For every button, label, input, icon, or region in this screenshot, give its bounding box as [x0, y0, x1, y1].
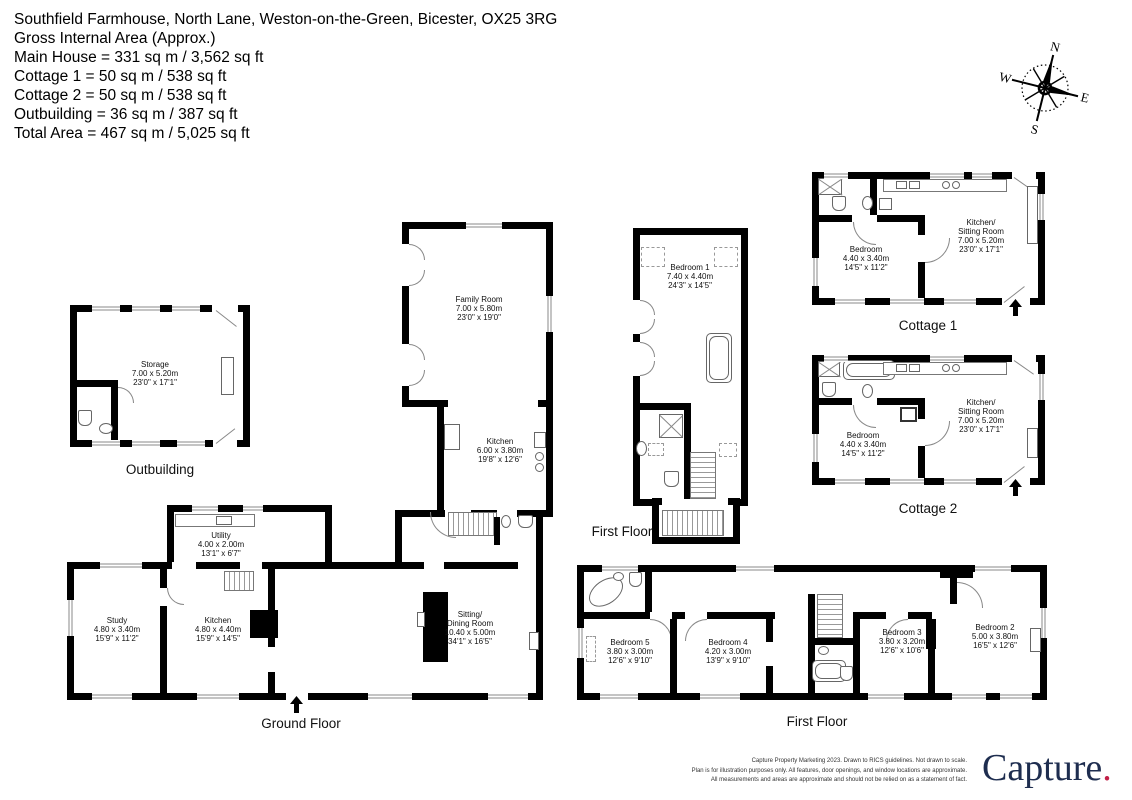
disclaimer-line-3: All measurements and areas are approxima… — [600, 776, 967, 786]
room-opening — [172, 562, 196, 569]
room-name: Storage — [132, 360, 178, 369]
storage-unit — [1030, 628, 1041, 652]
window — [824, 355, 848, 362]
room-dims-metric: 5.00 x 3.80m — [972, 632, 1018, 641]
room-name: Kitchen/ — [958, 218, 1004, 227]
wall — [77, 380, 111, 387]
bathtub-icon — [706, 333, 732, 383]
window — [835, 478, 865, 485]
disclaimer-line-2: Plan is for illustration purposes only. … — [600, 767, 967, 777]
window — [952, 693, 986, 700]
room-dims-metric: 4.20 x 3.00m — [705, 647, 751, 656]
window — [197, 693, 239, 700]
room-dims-imperial: 24'3" x 14'5" — [667, 281, 713, 290]
window — [602, 565, 638, 572]
storage-unit — [1027, 428, 1038, 458]
room-name: Kitchen/ — [958, 398, 1004, 407]
room-label-c2-kitchen: Kitchen/ Sitting Room 7.00 x 5.20m 23'0"… — [958, 398, 1004, 434]
door-opening — [633, 342, 640, 376]
toilet-icon — [629, 572, 642, 587]
stove-icon — [900, 407, 917, 422]
disclaimer: Capture Property Marketing 2023. Drawn t… — [600, 757, 967, 786]
staircase — [224, 571, 254, 591]
fireplace — [417, 612, 425, 627]
room-dims-imperial: 14'5" x 11'2" — [840, 449, 886, 458]
toilet-icon — [664, 471, 679, 487]
wall — [815, 638, 853, 645]
wall — [926, 619, 936, 649]
radiator — [529, 632, 539, 650]
entrance-arrow-icon — [289, 696, 304, 718]
sink-icon — [501, 515, 511, 528]
room-name: Kitchen — [477, 437, 523, 446]
area-cottage-1: Cottage 1 = 50 sq m / 538 sq ft — [14, 67, 557, 86]
section-label-first-floor-wing: First Floor — [787, 714, 848, 729]
window — [488, 693, 528, 700]
section-label-cottage1: Cottage 1 — [899, 318, 958, 333]
room-label-utility: Utility 4.00 x 2.00m 13'1" x 6'7" — [198, 531, 244, 558]
room-dims-imperial: 15'9" x 11'2" — [94, 634, 140, 643]
room-dims-imperial: 13'1" x 6'7" — [198, 549, 244, 558]
sink-icon — [636, 441, 647, 456]
room-dims-metric: 7.00 x 5.20m — [132, 369, 178, 378]
window — [944, 478, 976, 485]
room-name-2: Dining Room — [445, 619, 496, 628]
window — [243, 505, 263, 512]
room-label-c1-kitchen: Kitchen/ Sitting Room 7.00 x 5.20m 23'0"… — [958, 218, 1004, 254]
staircase — [662, 510, 724, 536]
room-name-2: Sitting Room — [958, 227, 1004, 236]
room-opening — [518, 562, 536, 569]
door-opening — [402, 344, 409, 386]
disclaimer-line-1: Capture Property Marketing 2023. Drawn t… — [600, 757, 967, 767]
room-label-c1-bedroom: Bedroom 4.40 x 3.40m 14'5" x 11'2" — [843, 245, 889, 272]
room-name: Utility — [198, 531, 244, 540]
sink-icon — [818, 646, 829, 655]
wall — [918, 262, 925, 298]
room-name: Bedroom 5 — [607, 638, 653, 647]
oven-icon — [534, 432, 546, 448]
window — [812, 434, 819, 462]
room-dims-metric: 10.40 x 5.00m — [445, 628, 496, 637]
room-label-family-room: Family Room 7.00 x 5.80m 23'0" x 19'0" — [455, 295, 502, 322]
capture-logo-dot: . — [1102, 747, 1112, 789]
room-dims-imperial: 13'9" x 9'10" — [705, 656, 751, 665]
room-name: Kitchen — [195, 616, 241, 625]
wall — [918, 446, 925, 478]
room-dims-imperial: 23'0" x 19'0" — [455, 313, 502, 322]
room-label-kitchen-gf: Kitchen 4.80 x 4.40m 15'9" x 14'5" — [195, 616, 241, 643]
window — [890, 478, 924, 485]
hob-icon — [942, 364, 950, 372]
gross-internal-area-label: Gross Internal Area (Approx.) — [14, 29, 557, 48]
window — [172, 305, 200, 312]
room-dims-metric: 7.00 x 5.20m — [958, 416, 1004, 425]
window — [546, 296, 553, 332]
compass-east-label: E — [1079, 89, 1090, 105]
wall — [672, 612, 685, 619]
wall — [670, 619, 677, 693]
room-dims-metric: 4.40 x 3.40m — [843, 254, 889, 263]
room-name: Bedroom 3 — [879, 628, 925, 637]
utility-counter — [175, 514, 255, 527]
window — [1040, 608, 1047, 638]
chimney-breast — [250, 610, 278, 638]
section-label-cottage2: Cottage 2 — [899, 501, 958, 516]
section-label-outbuilding: Outbuilding — [126, 462, 194, 477]
skylight — [586, 636, 596, 662]
room-dims-imperial: 23'0" x 17'1" — [958, 425, 1004, 434]
hob-icon — [942, 181, 950, 189]
hob-icon — [952, 181, 960, 189]
window — [736, 565, 774, 572]
sink-icon — [862, 384, 873, 398]
hob-icon — [535, 463, 544, 472]
window — [132, 440, 160, 447]
room-dims-imperial: 23'0" x 17'1" — [132, 378, 178, 387]
skylight — [641, 247, 665, 267]
storage-unit — [1027, 186, 1038, 244]
window — [890, 298, 924, 305]
window — [466, 222, 502, 229]
window — [92, 305, 120, 312]
skylight — [719, 443, 737, 457]
room-label-storage: Storage 7.00 x 5.20m 23'0" x 17'1" — [132, 360, 178, 387]
window — [368, 693, 412, 700]
window — [67, 600, 74, 636]
window — [975, 565, 1011, 572]
window — [868, 693, 904, 700]
room-dims-imperial: 23'0" x 17'1" — [958, 245, 1004, 254]
room-dims-imperial: 15'9" x 14'5" — [195, 634, 241, 643]
room-dims-metric: 7.00 x 5.20m — [958, 236, 1004, 245]
wall — [640, 403, 684, 410]
compass-north-label: N — [1049, 38, 1062, 55]
room-opening — [662, 498, 728, 507]
wall — [819, 398, 852, 405]
room-label-study: Study 4.80 x 3.40m 15'9" x 11'2" — [94, 616, 140, 643]
skylight — [714, 247, 738, 267]
room-name: Bedroom 2 — [972, 623, 1018, 632]
room-label-sitting-dining: Sitting/ Dining Room 10.40 x 5.00m 34'1"… — [445, 610, 496, 646]
room-dims-imperial: 14'5" x 11'2" — [843, 263, 889, 272]
window — [177, 440, 205, 447]
compass-south-label: S — [1029, 121, 1040, 137]
toilet-icon — [840, 666, 853, 681]
sink-icon — [613, 572, 624, 581]
window — [92, 440, 120, 447]
room-dims-metric: 7.00 x 5.80m — [455, 304, 502, 313]
door-opening — [402, 244, 409, 286]
room-name: Family Room — [455, 295, 502, 304]
staircase — [690, 452, 716, 499]
staircase — [817, 594, 843, 638]
wall — [766, 612, 773, 642]
room-name: Study — [94, 616, 140, 625]
wall — [853, 619, 860, 693]
wall — [908, 612, 932, 619]
compass-west-label: W — [998, 69, 1014, 87]
window — [100, 562, 142, 569]
plan-header: Southfield Farmhouse, North Lane, Weston… — [14, 10, 557, 143]
wall — [877, 398, 925, 405]
area-main-house: Main House = 331 sq m / 3,562 sq ft — [14, 48, 557, 67]
storage-unit — [221, 357, 234, 395]
capture-logo-text: Capture — [982, 747, 1102, 789]
toilet-icon — [78, 410, 92, 426]
room-dims-metric: 4.40 x 3.40m — [840, 440, 886, 449]
wall — [853, 612, 886, 619]
capture-logo: Capture. — [982, 746, 1112, 790]
room-dims-metric: 4.80 x 4.40m — [195, 625, 241, 634]
wall — [819, 215, 852, 222]
window — [600, 693, 638, 700]
room-dims-metric: 4.80 x 3.40m — [94, 625, 140, 634]
wall — [918, 222, 925, 235]
toilet-icon — [518, 515, 533, 528]
window — [92, 693, 132, 700]
area-outbuilding: Outbuilding = 36 sq m / 387 sq ft — [14, 105, 557, 124]
window — [930, 172, 964, 179]
area-total: Total Area = 467 sq m / 5,025 sq ft — [14, 124, 557, 143]
room-label-bedroom1: Bedroom 1 7.40 x 4.40m 24'3" x 14'5" — [667, 263, 713, 290]
window — [835, 298, 865, 305]
skylight — [648, 443, 664, 456]
room-dims-imperial: 12'6" x 9'10" — [607, 656, 653, 665]
kitchen-sink-icon — [896, 181, 907, 189]
compass-rose-icon: N E S W — [993, 34, 1097, 147]
wall — [918, 405, 925, 419]
room-name-2: Sitting Room — [958, 407, 1004, 416]
entrance-arrow-icon — [1008, 479, 1023, 501]
kitchen-sink-unit — [444, 424, 460, 450]
room-dims-metric: 3.80 x 3.20m — [879, 637, 925, 646]
room-dims-metric: 3.80 x 3.00m — [607, 647, 653, 656]
room-label-bedroom5: Bedroom 5 3.80 x 3.00m 12'6" x 9'10" — [607, 638, 653, 665]
room-label-bedroom2: Bedroom 2 5.00 x 3.80m 16'5" x 12'6" — [972, 623, 1018, 650]
room-label-c2-bedroom: Bedroom 4.40 x 3.40m 14'5" x 11'2" — [840, 431, 886, 458]
wall — [268, 672, 275, 693]
toilet-icon — [822, 382, 836, 397]
room-dims-metric: 6.00 x 3.80m — [477, 446, 523, 455]
room-name: Bedroom — [843, 245, 889, 254]
toilet-icon — [832, 196, 846, 211]
hob-icon — [535, 452, 544, 461]
wall — [928, 649, 935, 693]
window — [1000, 693, 1032, 700]
window — [944, 298, 976, 305]
kitchen-sink-icon — [909, 181, 920, 189]
entrance-arrow-icon — [1008, 299, 1023, 321]
section-label-ground-floor: Ground Floor — [261, 716, 341, 731]
room-name: Bedroom 4 — [705, 638, 751, 647]
wall — [877, 215, 925, 222]
sink-icon — [862, 196, 873, 210]
room-name: Sitting/ — [445, 610, 496, 619]
area-cottage-2: Cottage 2 = 50 sq m / 538 sq ft — [14, 86, 557, 105]
appliance-icon — [879, 198, 892, 210]
room-opening — [424, 562, 444, 569]
kitchen-sink-icon — [896, 364, 907, 372]
wall — [494, 517, 500, 545]
room-opening — [448, 400, 538, 407]
door-opening — [633, 300, 640, 334]
window — [972, 172, 992, 179]
room-name: Bedroom — [840, 431, 886, 440]
room-dims-metric: 7.40 x 4.40m — [667, 272, 713, 281]
window — [812, 258, 819, 286]
room-label-bedroom4: Bedroom 4 4.20 x 3.00m 13'9" x 9'10" — [705, 638, 751, 665]
room-name: Bedroom 1 — [667, 263, 713, 272]
room-dims-imperial: 19'8" x 12'6" — [477, 455, 523, 464]
utility-sink-icon — [216, 516, 232, 525]
wall — [160, 606, 167, 693]
window — [1038, 194, 1045, 220]
room-dims-imperial: 16'5" x 12'6" — [972, 641, 1018, 650]
room-dims-metric: 4.00 x 2.00m — [198, 540, 244, 549]
wall — [645, 572, 652, 612]
hob-icon — [952, 364, 960, 372]
kitchen-sink-icon — [909, 364, 920, 372]
window — [930, 355, 964, 362]
window — [577, 628, 584, 658]
property-address: Southfield Farmhouse, North Lane, Weston… — [14, 10, 557, 29]
room-label-kitchen-wing: Kitchen 6.00 x 3.80m 19'8" x 12'6" — [477, 437, 523, 464]
wall — [160, 569, 167, 588]
wall — [707, 612, 775, 619]
room-dims-imperial: 34'1" x 16'5" — [445, 637, 496, 646]
window — [1038, 374, 1045, 400]
sink-icon — [99, 423, 113, 434]
window — [192, 505, 218, 512]
room-dims-imperial: 12'6" x 10'6" — [879, 646, 925, 655]
room-opening — [240, 562, 262, 569]
section-label-first-floor-main: First Floor — [592, 524, 653, 539]
room-label-bedroom3: Bedroom 3 3.80 x 3.20m 12'6" x 10'6" — [879, 628, 925, 655]
window — [700, 693, 740, 700]
wall — [584, 612, 650, 619]
wall — [940, 572, 973, 578]
wall — [766, 666, 773, 693]
window — [132, 305, 160, 312]
window — [824, 172, 848, 179]
